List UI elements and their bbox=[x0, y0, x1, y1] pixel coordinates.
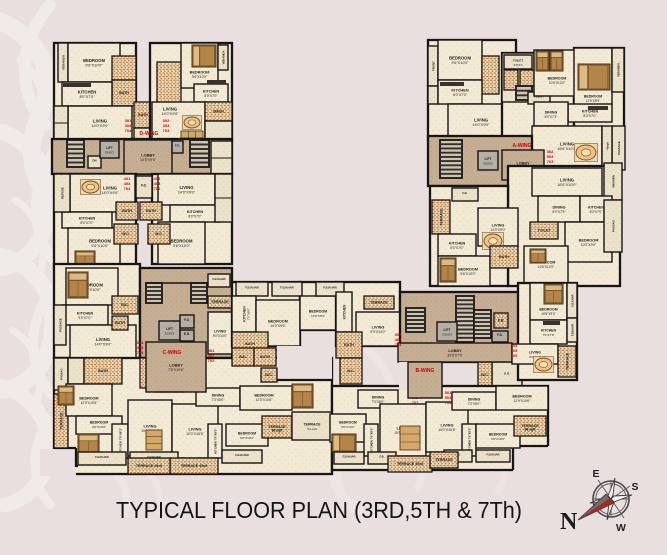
svg-text:KITCHEN: KITCHEN bbox=[449, 242, 466, 246]
svg-text:KITCHEN 7'0"X8'3": KITCHEN 7'0"X8'3" bbox=[369, 427, 373, 453]
svg-text:LIVING: LIVING bbox=[560, 142, 574, 147]
svg-text:12'9"X10'6": 12'9"X10'6" bbox=[514, 399, 532, 403]
svg-text:7'5"X19'6": 7'5"X19'6" bbox=[168, 368, 185, 372]
svg-text:F.D.: F.D. bbox=[497, 333, 503, 337]
svg-text:G.D.: G.D. bbox=[504, 372, 510, 376]
svg-text:9'6"X10'0": 9'6"X10'0" bbox=[451, 61, 469, 65]
svg-text:F.B.: F.B. bbox=[498, 319, 504, 323]
svg-text:BATH: BATH bbox=[98, 369, 108, 373]
svg-text:F.B.KHAR: F.B.KHAR bbox=[570, 324, 574, 336]
svg-text:8'3"X7'0": 8'3"X7'0" bbox=[583, 114, 597, 118]
svg-text:BATH: BATH bbox=[245, 342, 255, 346]
svg-text:VERANDA: VERANDA bbox=[616, 63, 620, 77]
svg-text:54 sqft: 54 sqft bbox=[307, 427, 316, 431]
svg-text:F.B.: F.B. bbox=[380, 455, 385, 459]
svg-text:9'0"X10'0": 9'0"X10'0" bbox=[491, 437, 505, 441]
svg-text:14'0"X9'0": 14'0"X9'0" bbox=[91, 124, 109, 128]
svg-text:BEDROOM: BEDROOM bbox=[90, 421, 108, 425]
svg-text:9'0"X7'0": 9'0"X7'0" bbox=[78, 316, 92, 320]
svg-text:KITCHEN 7'0"X8'3": KITCHEN 7'0"X8'3" bbox=[118, 427, 122, 454]
svg-text:W.C.: W.C. bbox=[265, 373, 273, 377]
svg-text:10'0"X16'6": 10'0"X16'6" bbox=[438, 428, 457, 432]
svg-text:705: 705 bbox=[511, 353, 518, 358]
svg-text:DN: DN bbox=[92, 159, 96, 163]
svg-text:BAL: BAL bbox=[239, 355, 247, 359]
svg-text:KITCHEN: KITCHEN bbox=[582, 110, 599, 114]
svg-text:LIFT: LIFT bbox=[106, 146, 113, 150]
svg-text:PASSAGE: PASSAGE bbox=[58, 318, 62, 332]
svg-text:LIFT: LIFT bbox=[444, 328, 451, 332]
svg-text:BEDROOM: BEDROOM bbox=[579, 239, 599, 243]
svg-text:7'3"X8'0": 7'3"X8'0" bbox=[212, 398, 225, 402]
svg-text:14'0"X9'0": 14'0"X9'0" bbox=[161, 112, 179, 116]
svg-text:W.C.: W.C. bbox=[122, 232, 130, 236]
svg-text:A-WING: A-WING bbox=[513, 143, 532, 149]
svg-text:LIVING: LIVING bbox=[529, 351, 541, 355]
svg-text:LIVING: LIVING bbox=[93, 119, 107, 124]
svg-text:LIVING: LIVING bbox=[474, 118, 488, 123]
svg-text:BEDROOM: BEDROOM bbox=[489, 433, 507, 437]
svg-text:9'6"X10'0": 9'6"X10'0" bbox=[192, 75, 208, 79]
svg-text:F.B.KHAR: F.B.KHAR bbox=[245, 286, 259, 290]
svg-text:8'3"X7'0": 8'3"X7'0" bbox=[590, 210, 603, 214]
svg-text:W: W bbox=[616, 522, 626, 534]
svg-text:703: 703 bbox=[547, 159, 554, 164]
svg-text:TOILET: TOILET bbox=[538, 229, 552, 233]
svg-text:2'6X4'0: 2'6X4'0 bbox=[514, 63, 523, 67]
svg-text:LIVING: LIVING bbox=[144, 424, 157, 429]
svg-text:8'0"X7'0": 8'0"X7'0" bbox=[204, 94, 218, 98]
svg-text:SHOWER: SHOWER bbox=[611, 175, 615, 188]
svg-text:12'0"X10'6": 12'0"X10'6" bbox=[256, 398, 274, 402]
svg-text:TYPICAL FLOOR PLAN (3RD,5TH &: TYPICAL FLOOR PLAN (3RD,5TH & 7Th) bbox=[116, 497, 522, 523]
svg-text:702: 702 bbox=[412, 400, 419, 405]
svg-text:8'0"X7'0": 8'0"X7'0" bbox=[79, 95, 95, 99]
svg-text:KITCHEN: KITCHEN bbox=[588, 206, 604, 210]
svg-text:8'0"X7'3": 8'0"X7'3" bbox=[545, 115, 558, 119]
svg-text:BAL: BAL bbox=[121, 303, 129, 307]
svg-text:BEDROOM: BEDROOM bbox=[512, 395, 531, 399]
svg-text:9'6"X10'0": 9'6"X10'0" bbox=[91, 244, 109, 248]
svg-text:LOBBY: LOBBY bbox=[141, 153, 155, 158]
svg-text:8'0"X7'0": 8'0"X7'0" bbox=[450, 246, 464, 250]
svg-text:LOBBY: LOBBY bbox=[169, 363, 183, 368]
svg-text:96 sqft: 96 sqft bbox=[525, 428, 537, 432]
svg-text:LIVING: LIVING bbox=[492, 224, 505, 228]
svg-text:BATH: BATH bbox=[146, 209, 156, 213]
svg-text:8'0"X7'3": 8'0"X7'3" bbox=[552, 210, 566, 214]
svg-text:7'0"X7'9": 7'0"X7'9" bbox=[542, 333, 554, 337]
svg-text:BEDROOM: BEDROOM bbox=[339, 421, 357, 425]
svg-text:12'0"X9'0": 12'0"X9'0" bbox=[586, 99, 600, 103]
svg-text:VERANDA: VERANDA bbox=[221, 51, 225, 65]
svg-text:9'6"X10'0": 9'6"X10'0" bbox=[85, 64, 103, 68]
svg-text:FRONT: FRONT bbox=[431, 61, 435, 71]
svg-text:F.B.KHAR: F.B.KHAR bbox=[280, 286, 294, 290]
svg-text:702: 702 bbox=[208, 358, 215, 363]
svg-text:KITCHEN 7'0"X8'3": KITCHEN 7'0"X8'3" bbox=[213, 428, 217, 454]
svg-text:LIVING: LIVING bbox=[163, 107, 177, 112]
svg-text:F.B.KHAR: F.B.KHAR bbox=[212, 277, 225, 281]
svg-text:TOILET: TOILET bbox=[513, 59, 523, 63]
svg-text:9'0"X10'0": 9'0"X10'0" bbox=[341, 425, 355, 429]
svg-text:KITCHEN: KITCHEN bbox=[541, 329, 557, 333]
svg-text:PASSAG: PASSAG bbox=[611, 220, 615, 232]
svg-text:14'0"X9'0": 14'0"X9'0" bbox=[101, 191, 119, 195]
svg-text:14'3"X9'6": 14'3"X9'6" bbox=[140, 158, 157, 162]
svg-text:F.D.: F.D. bbox=[141, 184, 147, 188]
svg-text:KITCHEN: KITCHEN bbox=[79, 217, 96, 221]
svg-text:702: 702 bbox=[154, 186, 161, 191]
svg-text:8'0"X7'0": 8'0"X7'0" bbox=[188, 215, 202, 219]
svg-text:C-WING: C-WING bbox=[163, 350, 182, 356]
svg-text:F.D.: F.D. bbox=[175, 144, 181, 148]
svg-text:39'6"X7'5": 39'6"X7'5" bbox=[447, 354, 463, 358]
svg-text:F.B.: F.B. bbox=[462, 191, 467, 195]
svg-text:F.B.KHAR: F.B.KHAR bbox=[570, 294, 574, 306]
svg-text:14'0"X9'0": 14'0"X9'0" bbox=[490, 228, 506, 232]
svg-text:704: 704 bbox=[125, 128, 132, 133]
svg-text:F.B.KHAR: F.B.KHAR bbox=[342, 455, 355, 459]
svg-text:B-WING: B-WING bbox=[416, 368, 435, 374]
svg-text:LIVING: LIVING bbox=[560, 178, 574, 183]
svg-text:KITCHEN: KITCHEN bbox=[203, 90, 220, 94]
svg-text:BATH: BATH bbox=[122, 209, 132, 213]
svg-text:E: E bbox=[592, 468, 599, 480]
svg-text:5'5X5'5: 5'5X5'5 bbox=[483, 162, 493, 166]
svg-text:BEDROOM: BEDROOM bbox=[83, 58, 105, 63]
svg-text:7'3"X8'0": 7'3"X8'0" bbox=[468, 402, 481, 406]
svg-text:14'0"X9'0": 14'0"X9'0" bbox=[178, 191, 196, 195]
svg-text:BEDROOM: BEDROOM bbox=[584, 95, 602, 99]
svg-text:LIVING: LIVING bbox=[96, 337, 110, 342]
svg-text:704: 704 bbox=[124, 186, 131, 191]
svg-text:BATH: BATH bbox=[344, 343, 354, 347]
svg-text:LIVING: LIVING bbox=[441, 423, 454, 428]
svg-text:BEDROOM: BEDROOM bbox=[79, 397, 98, 401]
svg-text:F.B.KHAR: F.B.KHAR bbox=[486, 453, 499, 457]
svg-text:BEDROOM: BEDROOM bbox=[458, 268, 478, 272]
svg-text:TERRACE: TERRACE bbox=[370, 301, 388, 305]
svg-text:8'0"X7'0": 8'0"X7'0" bbox=[80, 221, 94, 225]
svg-text:BEDROOM: BEDROOM bbox=[309, 310, 327, 314]
svg-text:TERRACE: TERRACE bbox=[565, 352, 569, 370]
svg-text:KITCHEN 7'0"X8'3": KITCHEN 7'0"X8'3" bbox=[467, 427, 471, 453]
svg-text:BATH: BATH bbox=[260, 355, 270, 359]
svg-text:D-WING: D-WING bbox=[140, 131, 159, 137]
svg-text:16'6"X10'0": 16'6"X10'0" bbox=[557, 183, 577, 187]
svg-text:8'0"X7'0": 8'0"X7'0" bbox=[453, 93, 468, 97]
svg-text:W.C.: W.C. bbox=[155, 232, 163, 236]
svg-text:W.C.: W.C. bbox=[481, 373, 489, 377]
svg-text:704: 704 bbox=[395, 342, 402, 347]
svg-text:WASH: WASH bbox=[213, 110, 224, 114]
svg-text:TERRACE 45x8: TERRACE 45x8 bbox=[397, 462, 423, 466]
svg-text:14'0"X9'0": 14'0"X9'0" bbox=[472, 123, 490, 127]
svg-text:BEDROOM: BEDROOM bbox=[190, 71, 210, 75]
svg-text:TERRACE 45x8: TERRACE 45x8 bbox=[181, 464, 207, 468]
svg-text:5'5X5'5: 5'5X5'5 bbox=[165, 332, 175, 336]
svg-text:LIVING: LIVING bbox=[189, 427, 202, 432]
svg-text:TERRACE 45x8: TERRACE 45x8 bbox=[136, 464, 162, 468]
svg-text:704: 704 bbox=[137, 350, 144, 355]
svg-text:LIVING: LIVING bbox=[103, 186, 117, 191]
svg-text:BEDROOM: BEDROOM bbox=[171, 239, 193, 244]
svg-text:BATH: BATH bbox=[115, 321, 125, 325]
svg-text:PASSAG: PASSAG bbox=[59, 368, 63, 379]
svg-text:9'0"X14'0": 9'0"X14'0" bbox=[370, 330, 386, 334]
svg-text:9'0"X10'0": 9'0"X10'0" bbox=[92, 425, 106, 429]
svg-text:DINING: DINING bbox=[553, 206, 566, 210]
svg-text:BEDROOM: BEDROOM bbox=[548, 77, 567, 81]
svg-text:703: 703 bbox=[163, 128, 170, 133]
svg-text:TERRACE: TERRACE bbox=[304, 423, 322, 427]
svg-text:LIVING: LIVING bbox=[180, 185, 194, 190]
svg-text:9'0"X14'0": 9'0"X14'0" bbox=[213, 334, 227, 338]
svg-text:VERANDA: VERANDA bbox=[61, 54, 65, 70]
svg-text:10'0"X9'6": 10'0"X9'6" bbox=[270, 324, 286, 328]
svg-text:10'6"X9'0": 10'6"X9'0" bbox=[541, 312, 555, 316]
svg-text:BEDROOM: BEDROOM bbox=[238, 432, 256, 436]
svg-text:S: S bbox=[631, 481, 638, 493]
svg-text:10'0"X16'6": 10'0"X16'6" bbox=[186, 432, 205, 436]
svg-text:DINING: DINING bbox=[545, 111, 558, 115]
svg-text:DINING: DINING bbox=[468, 398, 481, 402]
svg-text:9'0"X10'0": 9'0"X10'0" bbox=[240, 436, 254, 440]
svg-text:45sqft: 45sqft bbox=[605, 142, 609, 150]
svg-text:TERRACE: TERRACE bbox=[439, 208, 443, 226]
svg-text:10'6"X12'0": 10'6"X12'0" bbox=[549, 81, 565, 85]
svg-text:F.B.KHAR: F.B.KHAR bbox=[95, 455, 109, 459]
svg-text:BEDROOM: BEDROOM bbox=[268, 320, 288, 324]
svg-text:KITCHEN: KITCHEN bbox=[77, 312, 94, 316]
svg-text:N: N bbox=[560, 509, 578, 535]
svg-text:KITCHEN: KITCHEN bbox=[451, 88, 468, 93]
svg-text:10'0"X9'6": 10'0"X9'6" bbox=[311, 314, 325, 318]
svg-text:BEDROOM: BEDROOM bbox=[449, 56, 471, 61]
svg-text:BATH: BATH bbox=[138, 113, 148, 117]
svg-text:F.D.: F.D. bbox=[184, 318, 190, 322]
svg-text:704: 704 bbox=[445, 400, 452, 405]
svg-text:BEDROOM: BEDROOM bbox=[254, 394, 273, 398]
svg-text:LIFT: LIFT bbox=[485, 157, 492, 161]
svg-text:LIVING: LIVING bbox=[372, 326, 385, 330]
svg-text:5'5X5'5: 5'5X5'5 bbox=[442, 333, 452, 337]
svg-text:10'0"X9'0": 10'0"X9'0" bbox=[581, 243, 597, 247]
svg-text:TERRACE: TERRACE bbox=[211, 300, 229, 304]
svg-text:5'5X5'3: 5'5X5'3 bbox=[105, 151, 115, 155]
svg-text:F.B.KHAR: F.B.KHAR bbox=[323, 286, 337, 290]
svg-text:KITCHEN: KITCHEN bbox=[187, 210, 204, 214]
svg-text:7'0"X8'0": 7'0"X8'0" bbox=[246, 308, 250, 320]
svg-text:9'6"X10'0": 9'6"X10'0" bbox=[173, 244, 191, 248]
svg-text:10'6"X12'0": 10'6"X12'0" bbox=[538, 265, 554, 269]
svg-text:DINING: DINING bbox=[212, 394, 225, 398]
svg-text:TERRACE: TERRACE bbox=[59, 412, 63, 430]
svg-text:LIVING: LIVING bbox=[214, 330, 226, 334]
svg-text:F.B.KHAR: F.B.KHAR bbox=[235, 453, 249, 457]
svg-text:DINING: DINING bbox=[372, 396, 385, 400]
svg-text:TERRACE: TERRACE bbox=[435, 458, 453, 462]
svg-text:PASSAGE: PASSAGE bbox=[617, 141, 621, 155]
svg-text:BATH: BATH bbox=[119, 91, 129, 95]
svg-text:KITCHEN: KITCHEN bbox=[342, 304, 346, 319]
svg-text:LOBBY: LOBBY bbox=[448, 349, 462, 353]
svg-text:BEDROOM: BEDROOM bbox=[539, 308, 557, 312]
svg-text:96 sqft: 96 sqft bbox=[272, 429, 284, 433]
svg-text:14'0"X9'0": 14'0"X9'0" bbox=[94, 343, 112, 347]
svg-text:LIFT: LIFT bbox=[166, 327, 173, 331]
svg-text:W.C.: W.C. bbox=[347, 369, 355, 373]
svg-text:REFUSE: REFUSE bbox=[60, 187, 64, 198]
svg-text:BEDROOM: BEDROOM bbox=[89, 239, 111, 244]
svg-text:E.D.: E.D. bbox=[184, 332, 190, 336]
svg-text:12'0"X10'6": 12'0"X10'6" bbox=[81, 401, 99, 405]
svg-text:KITCHEN: KITCHEN bbox=[78, 90, 97, 95]
svg-text:BATH: BATH bbox=[499, 255, 509, 259]
svg-text:9'6"X10'0": 9'6"X10'0" bbox=[460, 272, 476, 276]
